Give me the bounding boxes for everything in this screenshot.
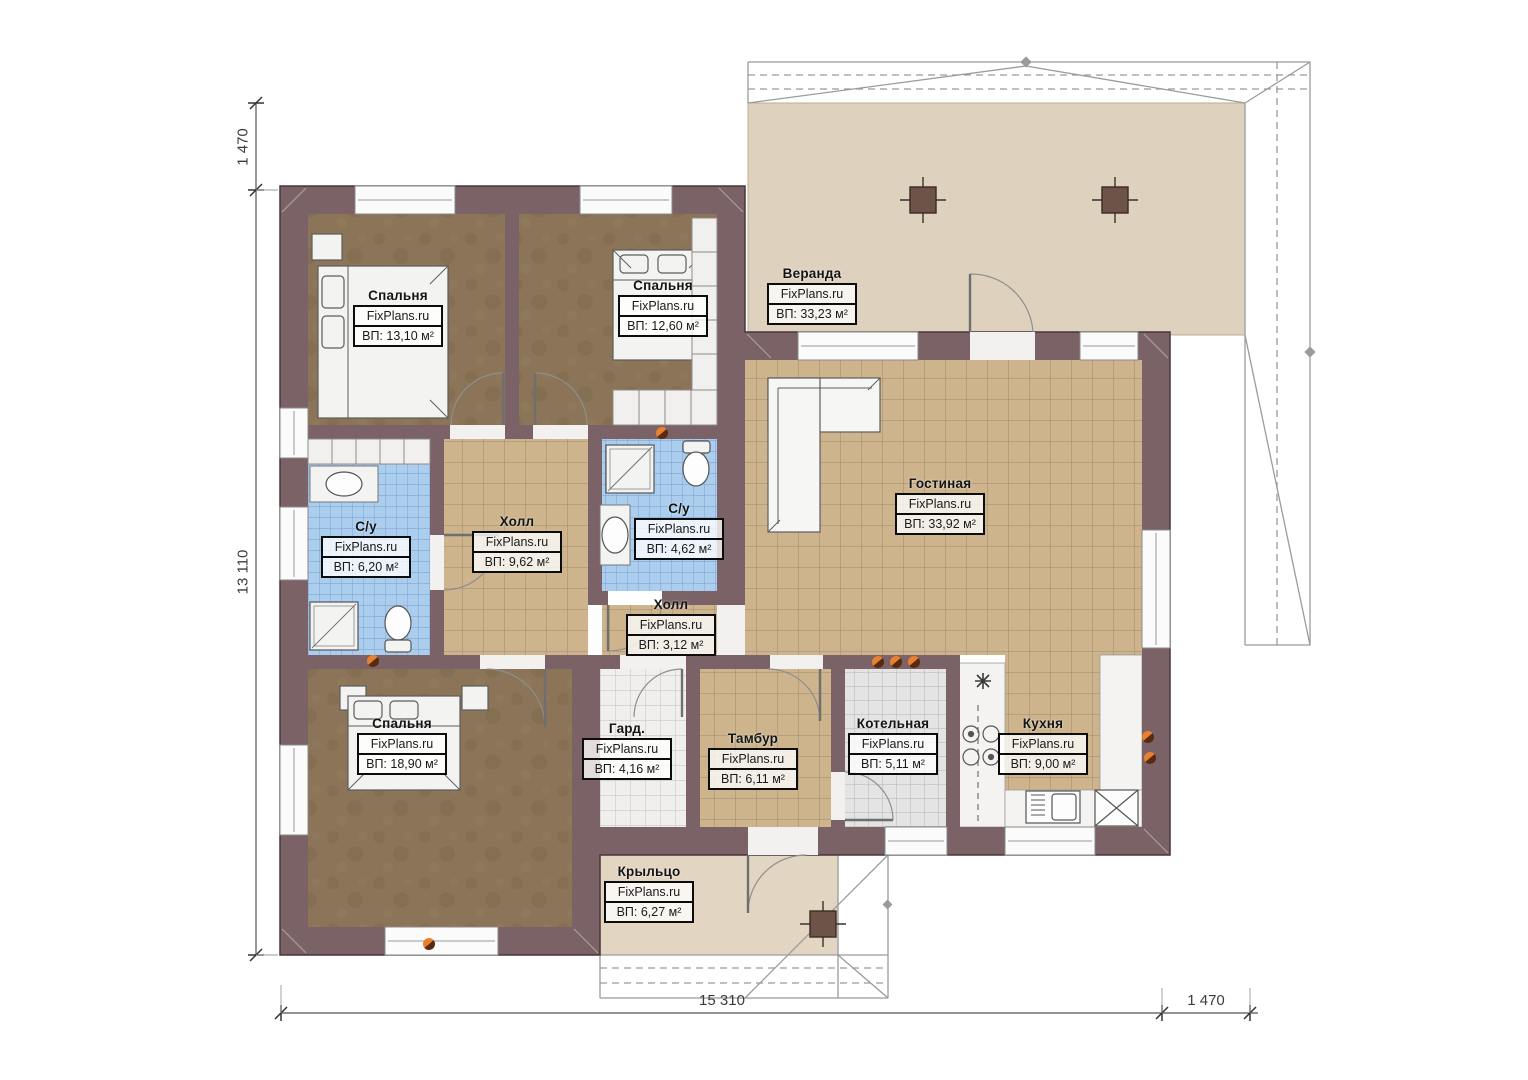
watermark-text: FixPlans.ru (584, 740, 670, 758)
room-label-living: Гостиная FixPlans.ru ВП: 33,92 м² (895, 476, 985, 535)
room-info-box: FixPlans.ru ВП: 13,10 м² (353, 305, 443, 347)
room-info-box: FixPlans.ru ВП: 6,27 м² (604, 881, 694, 923)
room-label-wardrobe: Гард. FixPlans.ru ВП: 4,16 м² (582, 721, 672, 780)
watermark-text: FixPlans.ru (606, 883, 692, 901)
watermark-text: FixPlans.ru (710, 750, 796, 768)
watermark-text: FixPlans.ru (769, 285, 855, 303)
room-label-bath-2: С/у FixPlans.ru ВП: 4,62 м² (634, 501, 724, 560)
room-area: ВП: 12,60 м² (620, 315, 706, 335)
room-name: Веранда (767, 266, 857, 281)
room-label-kitchen: Кухня FixPlans.ru ВП: 9,00 м² (998, 716, 1088, 775)
room-label-bedroom-2: Спальня FixPlans.ru ВП: 12,60 м² (618, 278, 708, 337)
room-area: ВП: 6,20 м² (323, 556, 409, 576)
room-info-box: FixPlans.ru ВП: 33,92 м² (895, 493, 985, 535)
room-name: Спальня (353, 288, 443, 303)
room-area: ВП: 4,62 м² (636, 538, 722, 558)
watermark-text: FixPlans.ru (628, 616, 714, 634)
watermark-text: FixPlans.ru (620, 297, 706, 315)
room-info-box: FixPlans.ru ВП: 33,23 м² (767, 283, 857, 325)
room-name: Гард. (582, 721, 672, 736)
watermark-text: FixPlans.ru (636, 520, 722, 538)
room-area: ВП: 4,16 м² (584, 758, 670, 778)
room-area: ВП: 3,12 м² (628, 634, 714, 654)
room-info-box: FixPlans.ru ВП: 4,62 м² (634, 518, 724, 560)
room-area: ВП: 33,23 м² (769, 303, 855, 323)
dimension-bottom-main: 15 310 (699, 992, 745, 1009)
watermark-text: FixPlans.ru (359, 735, 445, 753)
room-name: Спальня (618, 278, 708, 293)
room-name: Тамбур (708, 731, 798, 746)
room-info-box: FixPlans.ru ВП: 6,11 м² (708, 748, 798, 790)
room-info-box: FixPlans.ru ВП: 12,60 м² (618, 295, 708, 337)
room-area: ВП: 18,90 м² (359, 753, 445, 773)
room-area: ВП: 6,27 м² (606, 901, 692, 921)
watermark-text: FixPlans.ru (323, 538, 409, 556)
room-area: ВП: 13,10 м² (355, 325, 441, 345)
room-info-box: FixPlans.ru ВП: 3,12 м² (626, 614, 716, 656)
room-name: Кухня (998, 716, 1088, 731)
watermark-text: FixPlans.ru (897, 495, 983, 513)
watermark-text: FixPlans.ru (850, 735, 936, 753)
room-name: Спальня (357, 716, 447, 731)
room-name: Холл (472, 514, 562, 529)
room-label-porch: Крыльцо FixPlans.ru ВП: 6,27 м² (604, 864, 694, 923)
dimension-left-main: 13 110 (235, 550, 252, 595)
watermark-text: FixPlans.ru (355, 307, 441, 325)
room-area: ВП: 5,11 м² (850, 753, 936, 773)
floor-plan-drawing (0, 0, 1528, 1080)
room-label-boiler: Котельная FixPlans.ru ВП: 5,11 м² (848, 716, 938, 775)
room-label-bedroom-1: Спальня FixPlans.ru ВП: 13,10 м² (353, 288, 443, 347)
room-label-hall-2: Холл FixPlans.ru ВП: 3,12 м² (626, 597, 716, 656)
room-area: ВП: 9,00 м² (1000, 753, 1086, 773)
room-info-box: FixPlans.ru ВП: 9,00 м² (998, 733, 1088, 775)
dimension-left-top: 1 470 (235, 128, 252, 166)
floor-plan-canvas: 1 470 13 110 15 310 1 470 Спальня FixPla… (0, 0, 1528, 1080)
watermark-text: FixPlans.ru (1000, 735, 1086, 753)
dimension-bottom-right: 1 470 (1187, 992, 1225, 1009)
room-name: Котельная (848, 716, 938, 731)
room-label-hall-1: Холл FixPlans.ru ВП: 9,62 м² (472, 514, 562, 573)
watermark-text: FixPlans.ru (474, 533, 560, 551)
room-info-box: FixPlans.ru ВП: 18,90 м² (357, 733, 447, 775)
room-area: ВП: 6,11 м² (710, 768, 796, 788)
room-name: Гостиная (895, 476, 985, 491)
room-area: ВП: 9,62 м² (474, 551, 560, 571)
room-label-bath-1: С/у FixPlans.ru ВП: 6,20 м² (321, 519, 411, 578)
room-info-box: FixPlans.ru ВП: 9,62 м² (472, 531, 562, 573)
room-info-box: FixPlans.ru ВП: 4,16 м² (582, 738, 672, 780)
room-info-box: FixPlans.ru ВП: 6,20 м² (321, 536, 411, 578)
room-info-box: FixPlans.ru ВП: 5,11 м² (848, 733, 938, 775)
room-label-veranda: Веранда FixPlans.ru ВП: 33,23 м² (767, 266, 857, 325)
room-name: Крыльцо (604, 864, 694, 879)
room-area: ВП: 33,92 м² (897, 513, 983, 533)
room-name: С/у (321, 519, 411, 534)
room-label-bedroom-3: Спальня FixPlans.ru ВП: 18,90 м² (357, 716, 447, 775)
room-label-tambur: Тамбур FixPlans.ru ВП: 6,11 м² (708, 731, 798, 790)
closet-hall-strip (308, 439, 430, 464)
room-name: Холл (626, 597, 716, 612)
room-name: С/у (634, 501, 724, 516)
